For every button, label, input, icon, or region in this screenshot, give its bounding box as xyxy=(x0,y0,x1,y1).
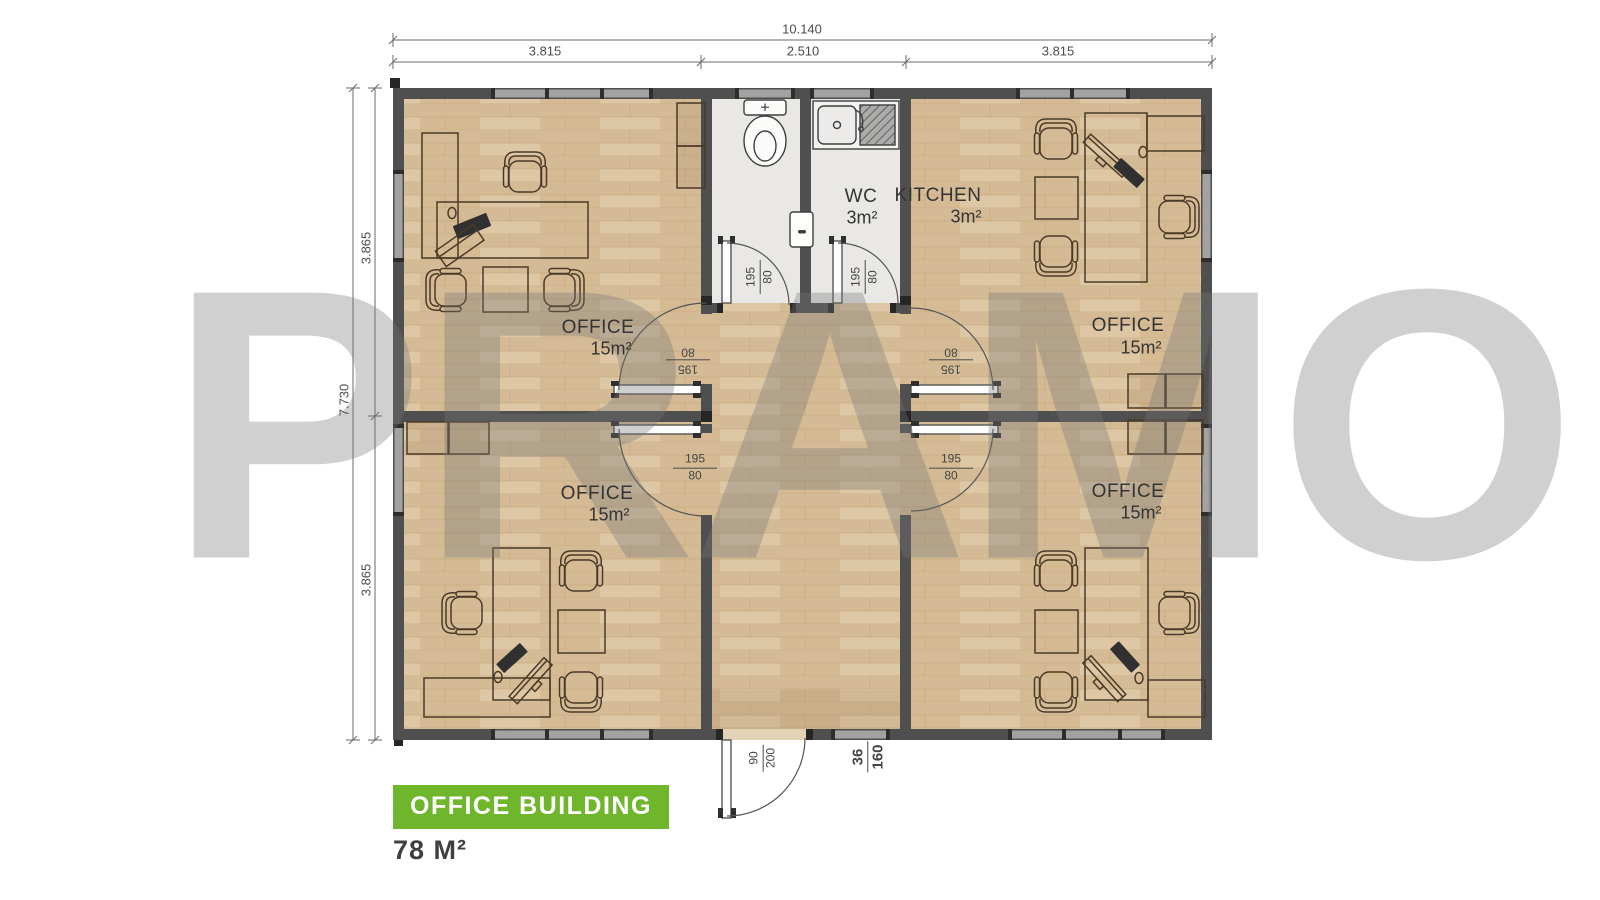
building-area: 78 M² xyxy=(393,835,669,866)
dimension-left-segment-2: 3.865 xyxy=(359,564,374,597)
door-size-kitchen: 195 80 xyxy=(850,260,881,294)
room-area-office-bottom-left: 15m² xyxy=(588,505,629,526)
room-label-kitchen: KITCHEN xyxy=(895,185,982,207)
title-block: OFFICE BUILDING 78 M² xyxy=(393,785,669,866)
door-size-office-bottom-left: 195 80 xyxy=(673,453,717,484)
dimension-left-total: 7.730 xyxy=(337,384,352,417)
dimension-top-segment-2: 2.510 xyxy=(787,44,820,59)
room-label-wc: WC xyxy=(845,186,878,208)
toilet-icon xyxy=(744,100,786,166)
door-size-wc: 195 80 xyxy=(745,260,776,294)
dimension-top-segment-3: 3.815 xyxy=(1042,44,1075,59)
room-label-office-top-right: OFFICE xyxy=(1092,315,1165,337)
door-size-office-top-left: 195 80 xyxy=(666,345,710,376)
room-label-office-top-left: OFFICE xyxy=(562,317,635,339)
dimension-top-total: 10.140 xyxy=(782,22,822,37)
door-size-office-top-right: 195 80 xyxy=(929,345,973,376)
door-size-office-bottom-right: 195 80 xyxy=(929,453,973,484)
title-banner: OFFICE BUILDING xyxy=(393,785,669,829)
title-banner-label: OFFICE BUILDING xyxy=(410,792,652,820)
room-label-office-bottom-left: OFFICE xyxy=(561,483,634,505)
room-area-kitchen: 3m² xyxy=(951,207,982,228)
room-area-office-bottom-right: 15m² xyxy=(1120,503,1161,524)
room-area-wc: 3m² xyxy=(847,208,878,229)
kitchen-sink-icon xyxy=(813,101,899,149)
door-size-entrance: 90 200 xyxy=(748,744,779,771)
room-area-office-top-right: 15m² xyxy=(1120,338,1161,359)
dimension-top-segment-1: 3.815 xyxy=(529,44,562,59)
floor-plan-page: PRAMO 10.140 3.815 2.510 3.815 7.730 3.8… xyxy=(0,0,1600,900)
room-label-office-bottom-right: OFFICE xyxy=(1092,481,1165,503)
room-area-office-top-left: 15m² xyxy=(590,339,631,360)
window-size-bottom: 36 160 xyxy=(849,742,887,773)
dimension-left-segment-1: 3.865 xyxy=(359,232,374,265)
